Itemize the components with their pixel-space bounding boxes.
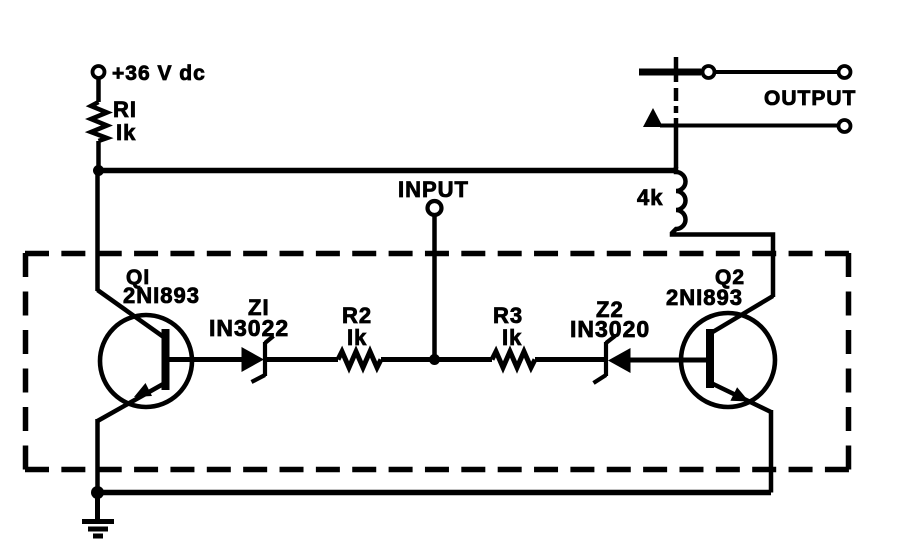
svg-text:RI: RI <box>113 97 137 122</box>
svg-text:INPUT: INPUT <box>398 177 469 202</box>
svg-text:Ik: Ik <box>502 325 522 350</box>
svg-text:2NI893: 2NI893 <box>666 285 743 310</box>
svg-text:Ik: Ik <box>347 325 367 350</box>
svg-text:+36 V dc: +36 V dc <box>112 62 206 85</box>
svg-text:IN3022: IN3022 <box>209 315 289 341</box>
svg-text:Ik: Ik <box>116 120 136 145</box>
svg-text:4k: 4k <box>637 185 663 210</box>
svg-text:IN3020: IN3020 <box>570 316 650 342</box>
svg-text:2NI893: 2NI893 <box>123 283 200 308</box>
svg-text:OUTPUT: OUTPUT <box>764 87 856 110</box>
